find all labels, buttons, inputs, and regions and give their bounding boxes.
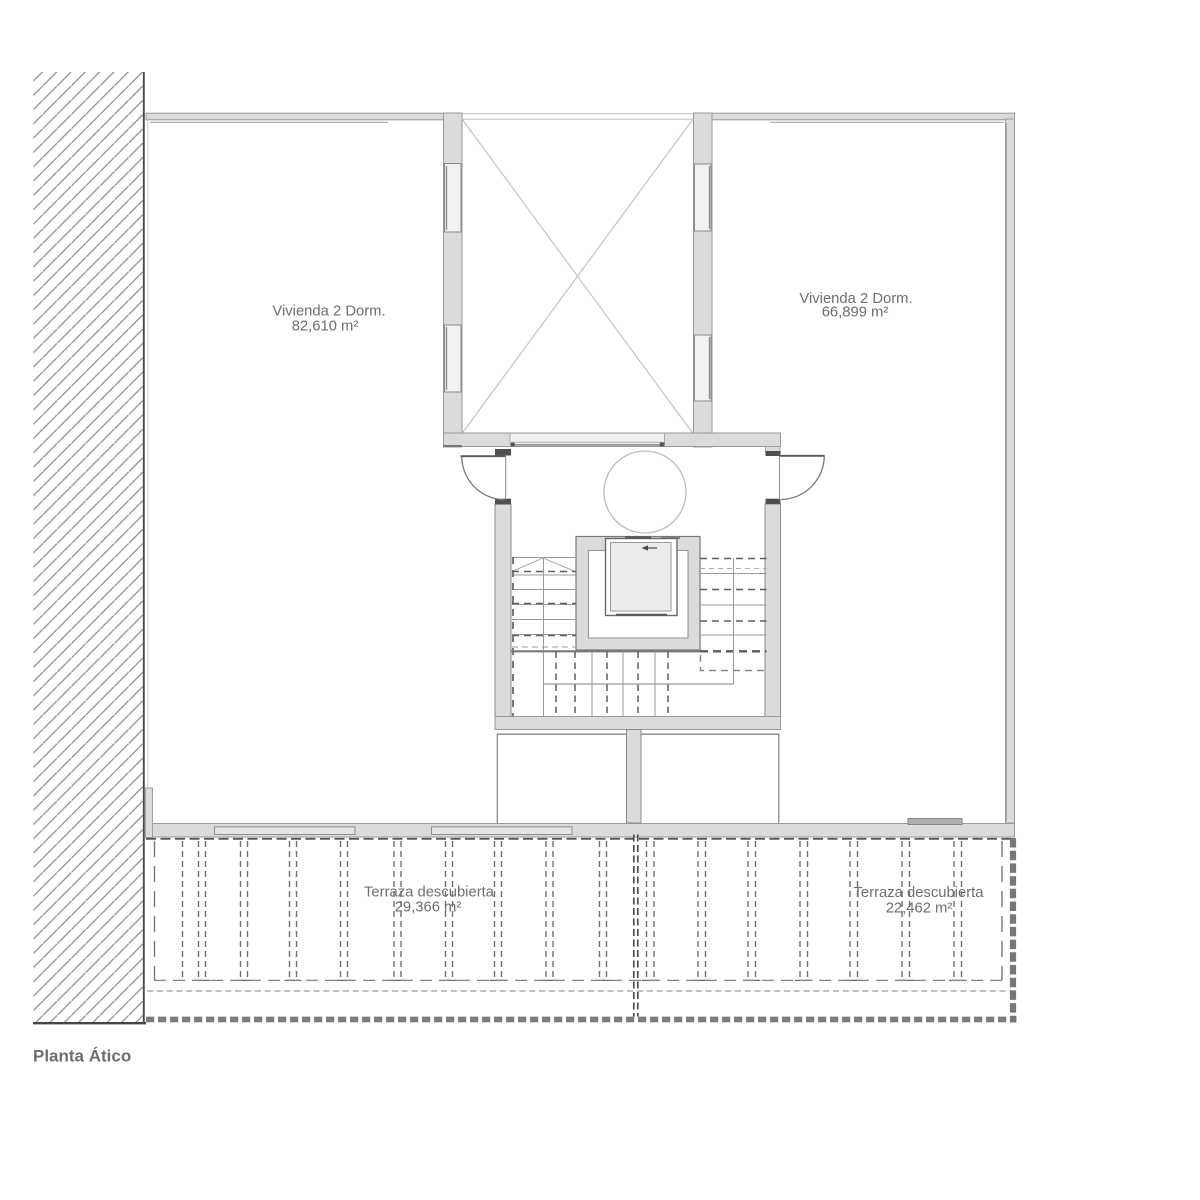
- svg-text:Terraza descubierta: Terraza descubierta: [364, 884, 495, 900]
- svg-text:Terraza descubierta: Terraza descubierta: [854, 885, 985, 901]
- svg-text:82,610 m²: 82,610 m²: [292, 318, 359, 334]
- svg-text:22,462 m²: 22,462 m²: [886, 900, 953, 916]
- svg-text:29,366 m²: 29,366 m²: [395, 899, 462, 915]
- svg-text:Vivienda 2 Dorm.: Vivienda 2 Dorm.: [272, 303, 385, 319]
- svg-text:Planta Ático: Planta Ático: [33, 1047, 131, 1066]
- svg-text:66,899 m²: 66,899 m²: [822, 304, 889, 320]
